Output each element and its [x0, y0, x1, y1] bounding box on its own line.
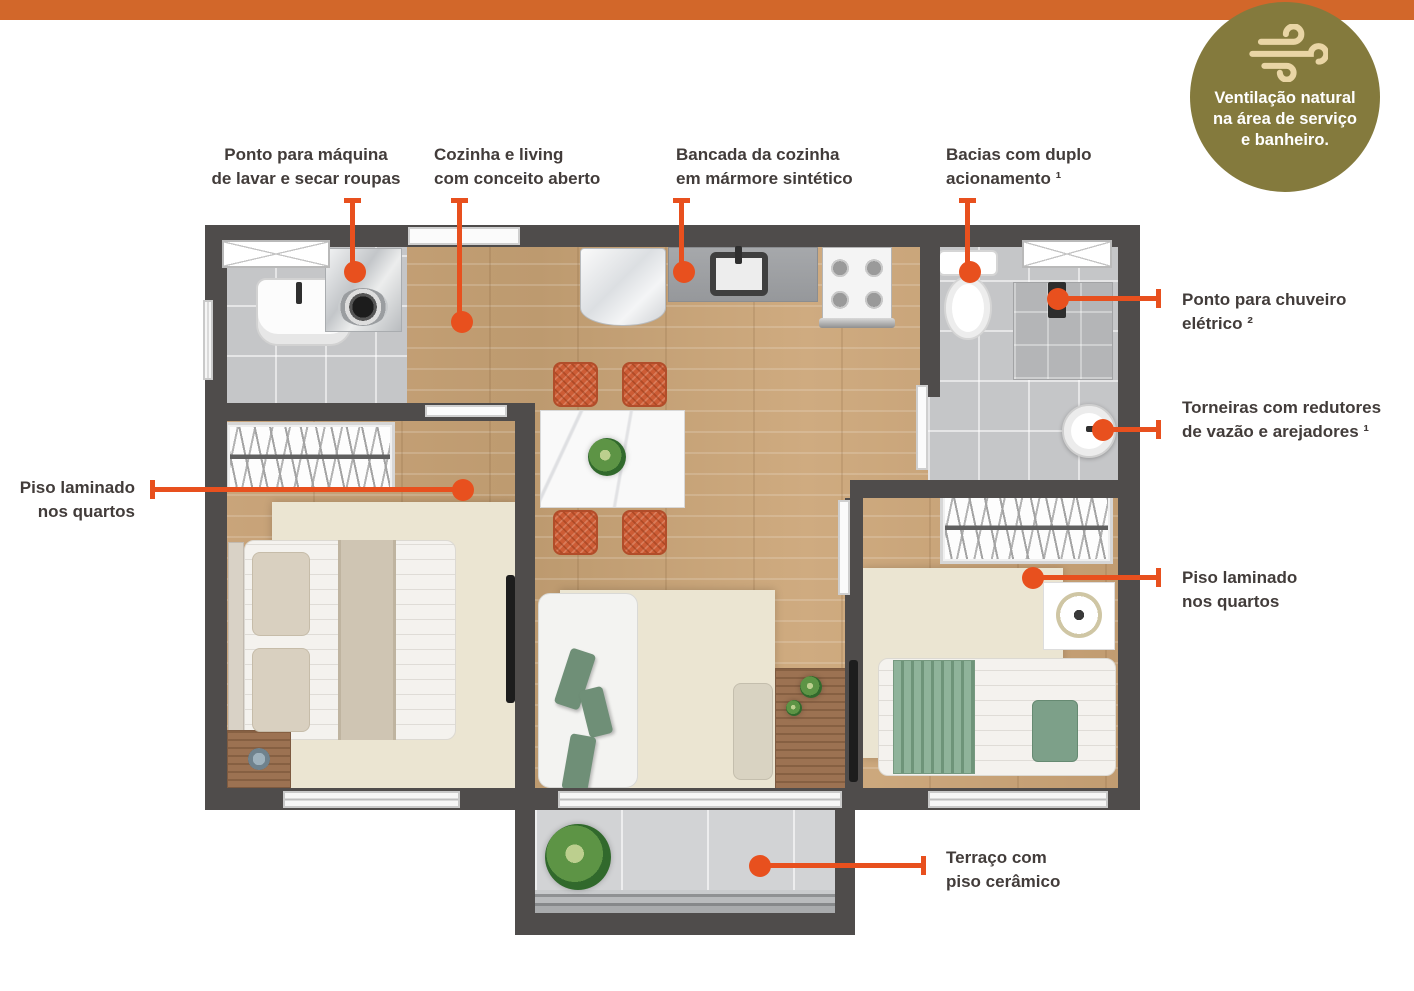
bedroom2-pillow — [1032, 700, 1078, 762]
terrace-sliding-door — [558, 791, 842, 808]
ottoman — [733, 683, 773, 780]
page: Ventilação natural na área de serviço e … — [0, 0, 1414, 991]
bedroom2-table-object — [1056, 592, 1102, 638]
leader-line — [152, 487, 463, 492]
sideboard-plant — [800, 676, 822, 698]
callout-line: Ponto para chuveiro — [1182, 288, 1402, 312]
callout-line: Torneiras com redutores — [1182, 396, 1412, 420]
wall-bedroom1-living — [515, 403, 535, 790]
callout-laminate-right: Piso laminado nos quartos — [1182, 566, 1402, 614]
stove — [822, 247, 892, 321]
bedroom2-blanket — [893, 660, 975, 774]
callout-line: Terraço com — [946, 846, 1166, 870]
leader-cap — [1156, 568, 1161, 587]
leader-dot — [1022, 567, 1044, 589]
callout-line: Cozinha e living — [434, 143, 654, 167]
leader-dot — [452, 479, 474, 501]
top-accent-bar — [0, 0, 1414, 20]
callout-line: nos quartos — [1182, 590, 1402, 614]
terrace-plant — [545, 824, 611, 890]
callout-line: Piso laminado — [1182, 566, 1402, 590]
callout-shower-point: Ponto para chuveiro elétrico ² — [1182, 288, 1402, 336]
leader-cap — [1156, 420, 1161, 439]
bedroom2-tv — [849, 660, 858, 782]
bedroom1-headboard — [228, 542, 244, 738]
callout-open-kitchen: Cozinha e living com conceito aberto — [434, 143, 654, 191]
table-plant — [588, 438, 626, 476]
callout-line: de lavar e secar roupas — [190, 167, 422, 191]
callout-line: acionamento ¹ — [946, 167, 1166, 191]
callout-countertop: Bancada da cozinha em mármore sintético — [676, 143, 896, 191]
bedroom1-window — [283, 791, 460, 808]
callout-faucets: Torneiras com redutores de vazão e areja… — [1182, 396, 1412, 444]
callout-line: piso cerâmico — [946, 870, 1166, 894]
leader-line — [457, 200, 462, 322]
bedroom1-wardrobe — [225, 422, 395, 492]
bedroom1-blanket — [338, 540, 396, 740]
bathroom-window — [1022, 240, 1112, 268]
kitchen-faucet — [735, 246, 742, 264]
dining-chair — [622, 362, 667, 407]
pillow — [252, 648, 310, 732]
dining-chair — [553, 362, 598, 407]
washing-machine-drum — [338, 288, 388, 326]
nightstand-lamp — [248, 748, 270, 770]
leader-dot — [673, 261, 695, 283]
callout-line: nos quartos — [5, 500, 135, 524]
terrace-wall-bottom — [515, 913, 855, 935]
leader-dot — [749, 855, 771, 877]
callout-line: de vazão e arejadores ¹ — [1182, 420, 1412, 444]
leader-cap — [1156, 289, 1161, 308]
entry-door — [408, 227, 520, 245]
service-upper-cabinet — [222, 240, 330, 268]
laundry-faucet — [296, 282, 302, 304]
callout-washer-point: Ponto para máquina de lavar e secar roup… — [190, 143, 422, 191]
wind-icon — [1242, 24, 1328, 82]
callout-terrace: Terraço com piso cerâmico — [946, 846, 1166, 894]
wall-kitchen-bathroom — [920, 247, 940, 397]
bedroom2-wardrobe — [940, 492, 1113, 564]
leader-dot — [959, 261, 981, 283]
callout-line: Piso laminado — [5, 476, 135, 500]
fridge — [580, 248, 666, 326]
leader-dot — [451, 311, 473, 333]
leader-dot — [344, 261, 366, 283]
bedroom2-window — [928, 791, 1108, 808]
leader-line — [1033, 575, 1160, 580]
callout-line: elétrico ² — [1182, 312, 1402, 336]
service-window — [203, 300, 213, 380]
bathroom-door — [916, 385, 928, 470]
wall-service-bedroom1 — [205, 403, 407, 421]
callout-laminate-left: Piso laminado nos quartos — [5, 476, 135, 524]
bedroom1-door — [425, 405, 507, 417]
callout-dual-flush: Bacias com duplo acionamento ¹ — [946, 143, 1166, 191]
callout-line: com conceito aberto — [434, 167, 654, 191]
bedroom1-tv — [506, 575, 515, 703]
pillow — [252, 552, 310, 636]
leader-dot — [1092, 419, 1114, 441]
leader-cap — [921, 856, 926, 875]
callout-line: Bacias com duplo — [946, 143, 1166, 167]
dining-chair — [622, 510, 667, 555]
sideboard-plant — [786, 700, 802, 716]
ventilation-badge: Ventilação natural na área de serviço e … — [1190, 2, 1380, 192]
wall-bathroom-bedroom2 — [850, 480, 1120, 498]
badge-text: Ventilação natural na área de serviço e … — [1213, 88, 1357, 151]
leader-line — [1058, 296, 1160, 301]
wall-top — [205, 225, 1140, 247]
callout-line: em mármore sintético — [676, 167, 896, 191]
terrace-railing — [535, 890, 835, 913]
bedroom2-door — [838, 500, 850, 595]
leader-line — [760, 863, 925, 868]
dining-chair — [553, 510, 598, 555]
toilet — [944, 276, 992, 340]
callout-line: Ponto para máquina — [190, 143, 422, 167]
callout-line: Bancada da cozinha — [676, 143, 896, 167]
wall-right — [1118, 225, 1140, 810]
leader-dot — [1047, 288, 1069, 310]
